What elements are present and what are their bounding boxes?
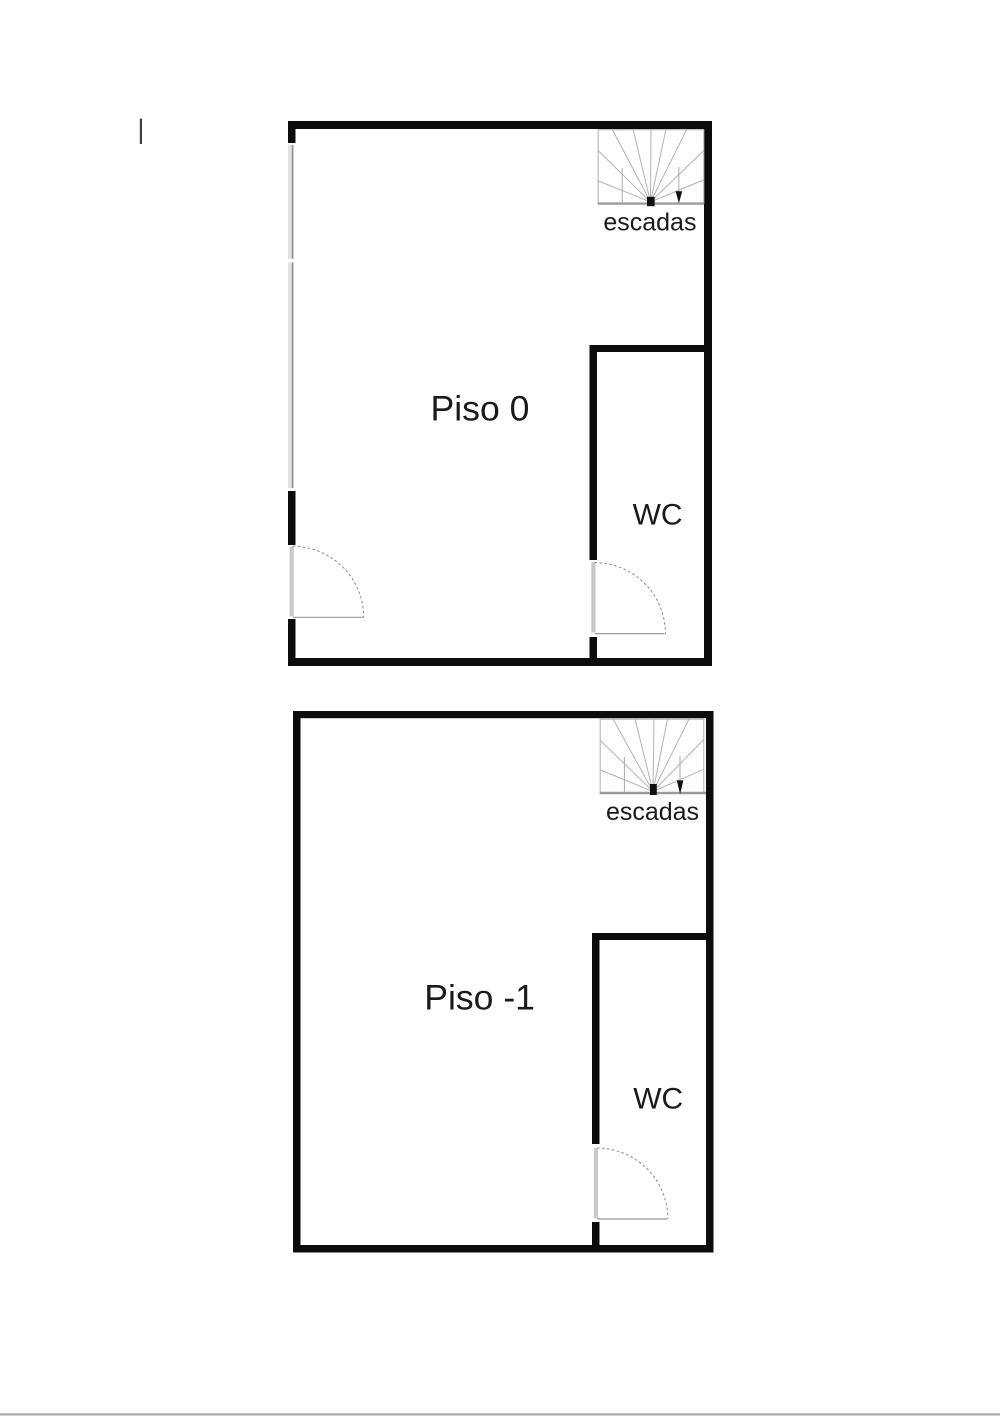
svg-text:escadas: escadas [603, 209, 696, 237]
svg-text:Piso 0: Piso 0 [431, 389, 530, 429]
svg-text:escadas: escadas [606, 798, 699, 826]
svg-text:Piso -1: Piso -1 [424, 978, 535, 1018]
svg-text:WC: WC [633, 1082, 683, 1115]
svg-text:WC: WC [633, 498, 683, 531]
